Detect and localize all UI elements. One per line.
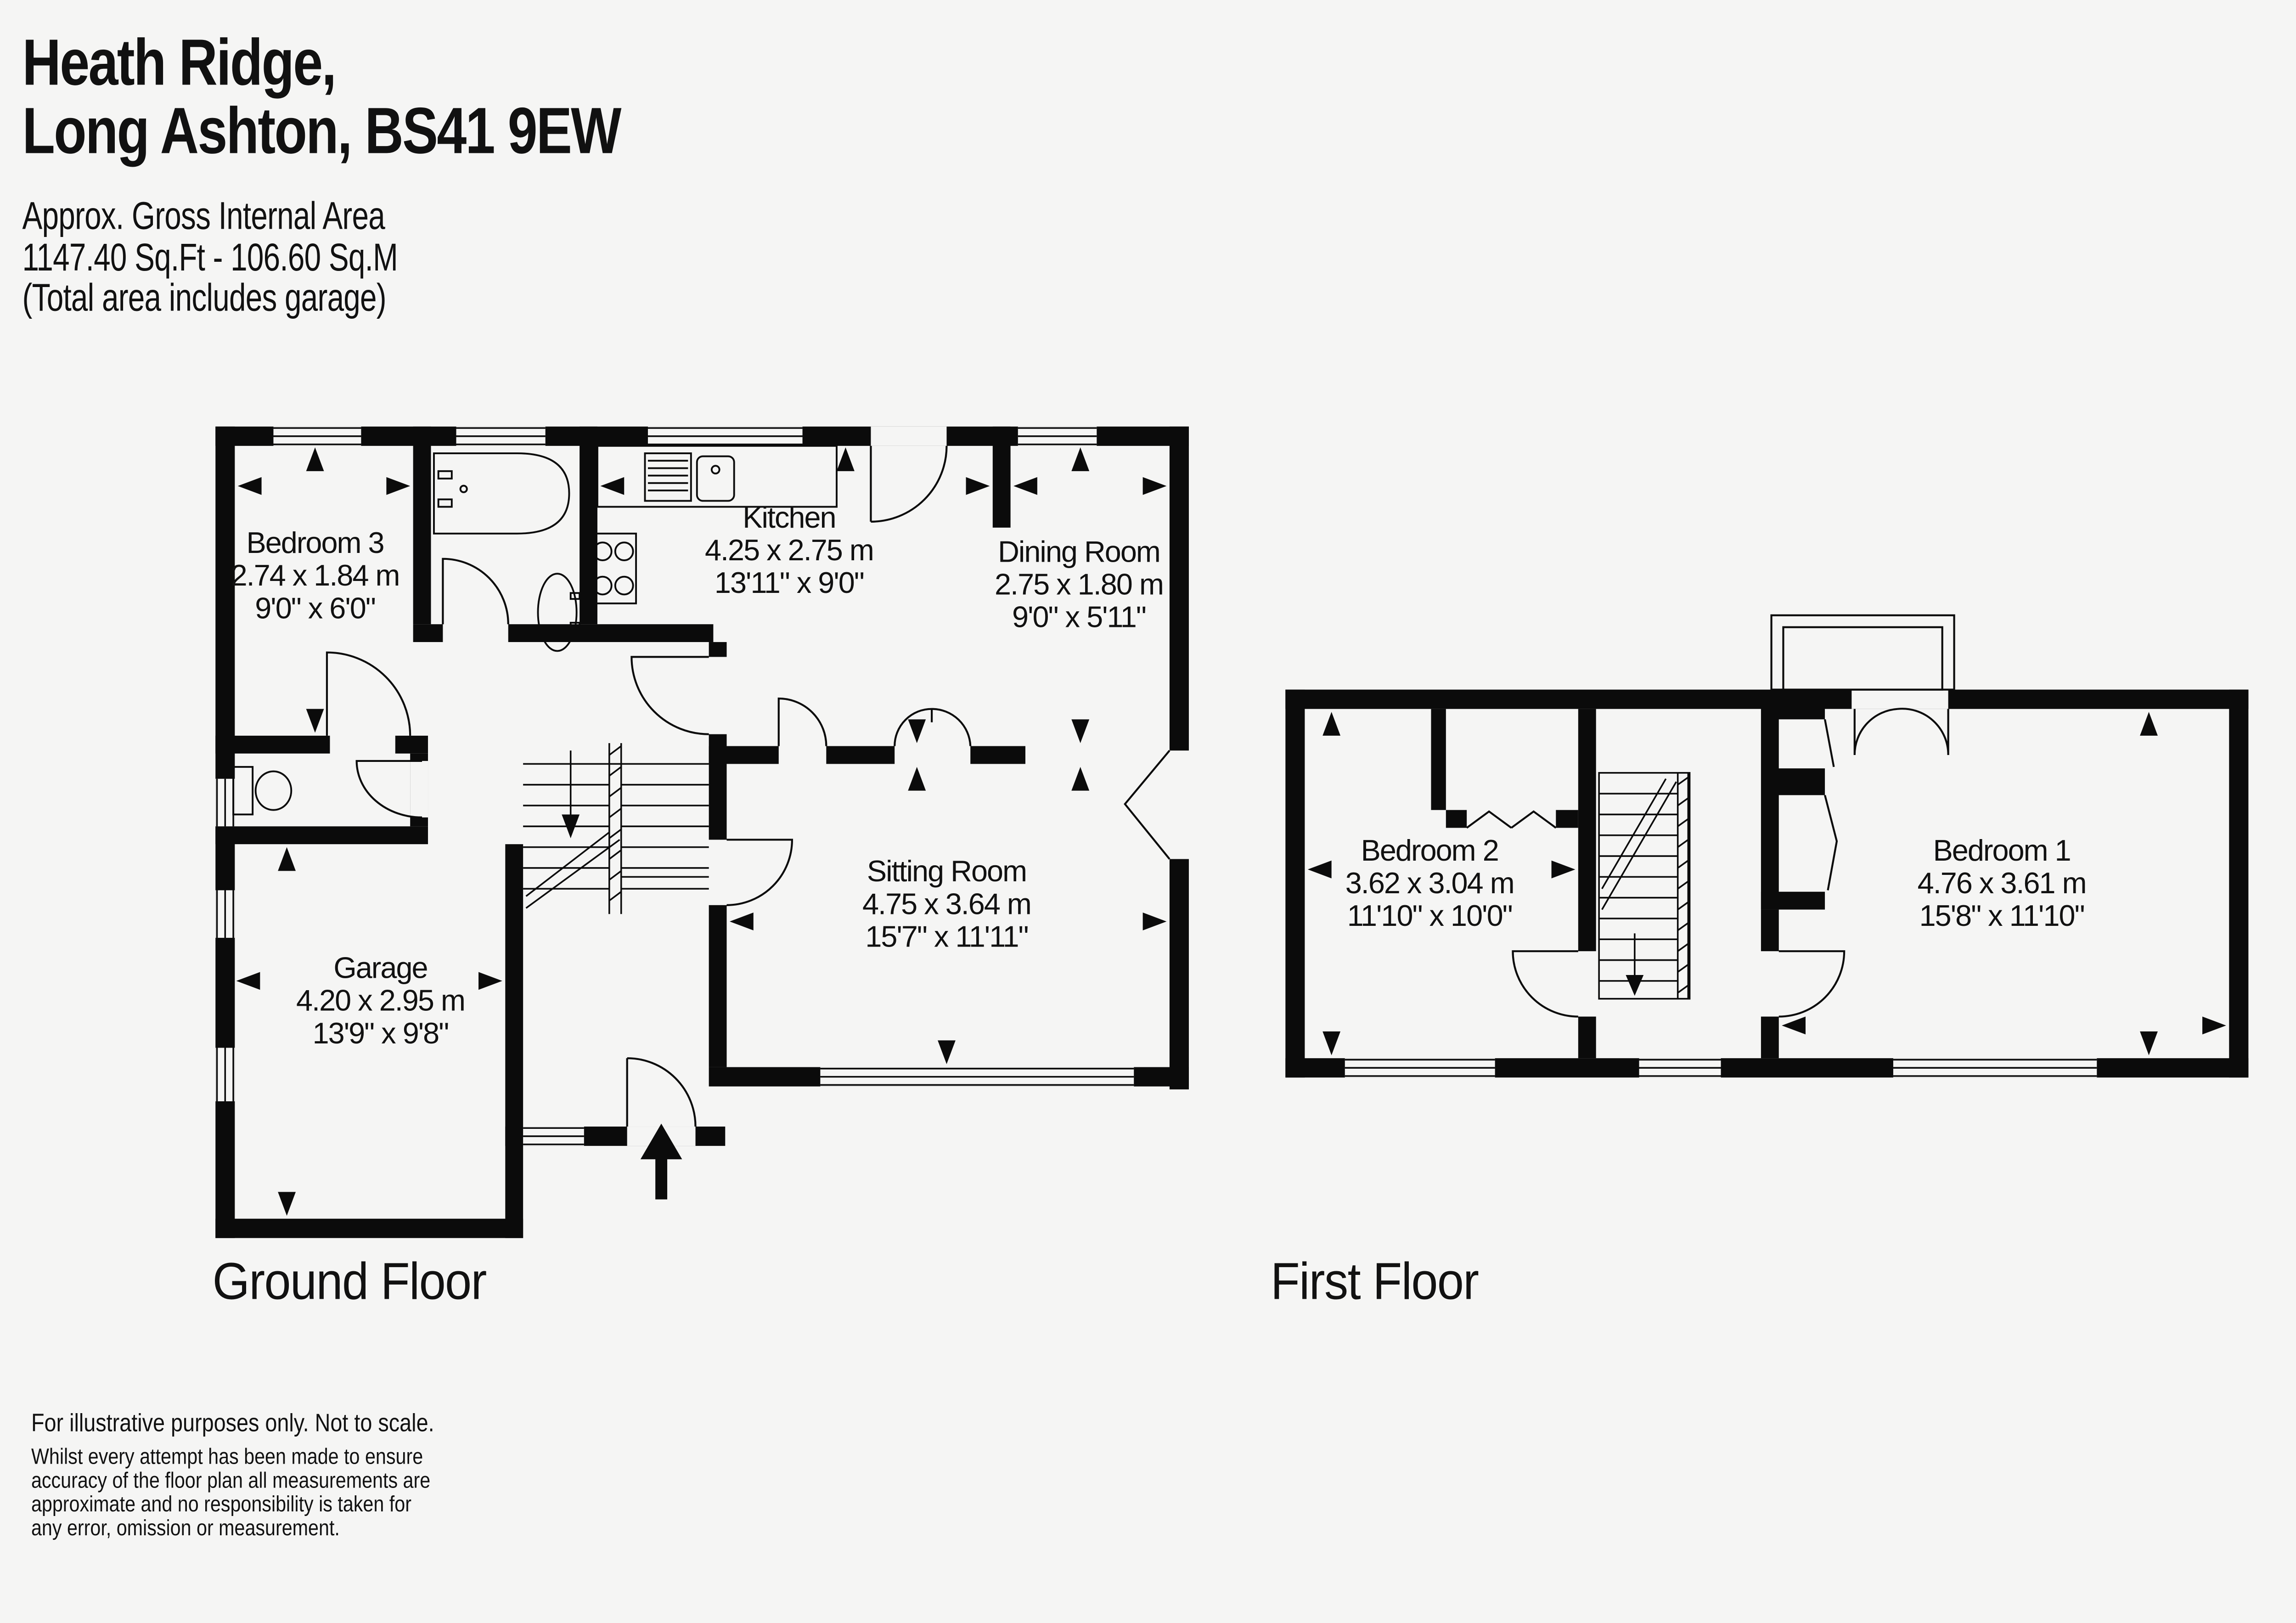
french-doors-porch (1855, 709, 1948, 755)
wardrobe-bifold-doors (1467, 811, 1556, 828)
window-sitting (820, 1067, 1134, 1087)
window-bathroom (456, 427, 546, 446)
double-doors-dining (895, 709, 970, 746)
room-name: Bedroom 3 (231, 528, 400, 560)
patio-doors-open (1125, 750, 1170, 859)
first-floor-stairs (1599, 773, 1689, 999)
window-garage-1 (215, 890, 235, 938)
door-arc-sitting (727, 840, 792, 905)
first-floor-door-openings (1851, 690, 1948, 709)
room-name: Garage (296, 952, 465, 985)
door-arc-bathroom (443, 559, 508, 624)
window-landing (1639, 1058, 1721, 1077)
stair-handrail (526, 832, 620, 908)
disclaimer-line: Whilst every attempt has been made to en… (31, 1446, 430, 1470)
room-metric: 3.62 x 3.04 m (1345, 868, 1514, 901)
window-kitchen (648, 427, 803, 446)
room-label-sitting: Sitting Room 4.75 x 3.64 m 15'7" x 11'11… (862, 856, 1031, 954)
window-bedroom1 (1893, 1058, 2097, 1077)
room-metric: 2.74 x 1.84 m (231, 560, 400, 593)
window-garage-2 (215, 1048, 235, 1102)
floorplan-page: Heath Ridge, Long Ashton, BS41 9EW Appro… (0, 0, 2296, 1623)
room-label-bedroom1: Bedroom 1 4.76 x 3.61 m 15'8" x 11'10" (1918, 835, 2086, 934)
window-dining (1018, 427, 1097, 446)
disclaimer-line: any error, omission or measurement. (31, 1517, 430, 1540)
room-label-bedroom3: Bedroom 3 2.74 x 1.84 m 9'0" x 6'0" (231, 528, 400, 626)
window-bedroom3 (273, 427, 361, 446)
stairs-down-arrow-ff-icon (1626, 933, 1643, 996)
window-porch (523, 1127, 584, 1146)
room-imperial: 13'11" x 9'0" (705, 568, 873, 600)
room-imperial: 9'0" x 5'11" (995, 602, 1163, 635)
disclaimer-line: accuracy of the floor plan all measureme… (31, 1470, 430, 1493)
door-arc-hall (631, 657, 709, 734)
door-arc-bedroom1 (1779, 951, 1844, 1016)
room-name: Kitchen (705, 502, 873, 535)
room-imperial: 9'0" x 6'0" (231, 593, 400, 626)
toilet (233, 767, 291, 815)
room-metric: 4.25 x 2.75 m (705, 535, 873, 568)
first-floor-doors (1467, 709, 1948, 1016)
room-name: Dining Room (995, 536, 1163, 569)
room-metric: 4.76 x 3.61 m (1918, 868, 2086, 901)
room-metric: 4.20 x 2.95 m (296, 986, 465, 1018)
bathtub (434, 453, 569, 534)
room-name: Bedroom 2 (1345, 835, 1514, 868)
room-imperial: 13'9" x 9'8" (296, 1018, 465, 1051)
stair-handrail-ff (1602, 779, 1677, 910)
door-arc-side-entrance (871, 446, 946, 522)
room-name: Sitting Room (862, 856, 1031, 889)
disclaimer-paragraph: Whilst every attempt has been made to en… (31, 1446, 430, 1541)
kitchen-counter (597, 446, 837, 507)
room-label-bedroom2: Bedroom 2 3.62 x 3.04 m 11'10" x 10'0" (1345, 835, 1514, 934)
door-arc-front (627, 1058, 696, 1127)
room-label-dining: Dining Room 2.75 x 1.80 m 9'0" x 5'11" (995, 536, 1163, 635)
door-arc-kitchen (779, 699, 827, 746)
room-metric: 4.75 x 3.64 m (862, 889, 1031, 921)
floorplan-drawing (0, 0, 2296, 1623)
room-name: Bedroom 1 (1918, 835, 2086, 868)
porch-outline (1772, 615, 1954, 690)
first-floor-windows (1345, 1058, 2097, 1077)
door-arc-bedroom3 (327, 653, 410, 736)
window-wc (215, 779, 235, 827)
room-imperial: 11'10" x 10'0" (1345, 901, 1514, 933)
room-label-garage: Garage 4.20 x 2.95 m 13'9" x 9'8" (296, 952, 465, 1051)
room-metric: 2.75 x 1.80 m (995, 569, 1163, 602)
ground-floor-stairs (523, 743, 709, 914)
door-arc-bedroom2 (1513, 951, 1578, 1016)
cupboard-doors (1825, 719, 1837, 890)
disclaimer-line: approximate and no responsibility is tak… (31, 1493, 430, 1517)
room-imperial: 15'8" x 11'10" (1918, 901, 2086, 933)
room-imperial: 15'7" x 11'11" (862, 921, 1031, 954)
first-floor-label: First Floor (1271, 1253, 1479, 1312)
ground-floor-label: Ground Floor (213, 1253, 486, 1312)
disclaimer-scale-note: For illustrative purposes only. Not to s… (31, 1409, 434, 1439)
room-label-kitchen: Kitchen 4.25 x 2.75 m 13'11" x 9'0" (705, 502, 873, 601)
window-bedroom2 (1345, 1058, 1495, 1077)
